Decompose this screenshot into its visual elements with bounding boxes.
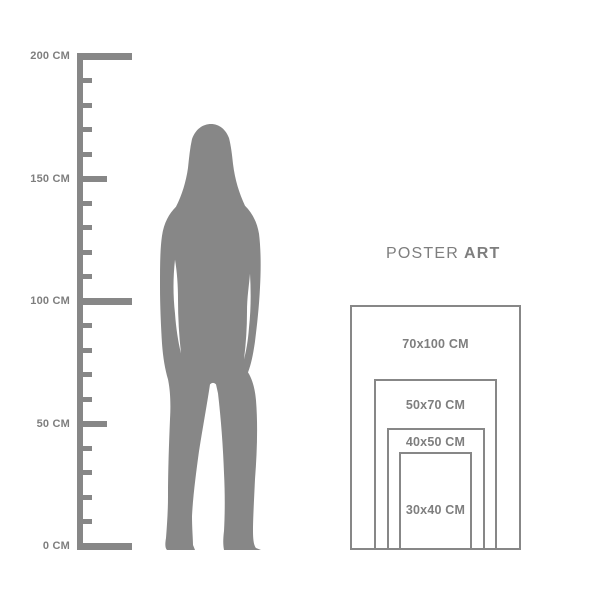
- ruler-tick-160cm: [77, 152, 92, 157]
- size-rect-70x100: [350, 305, 522, 550]
- ruler-tick-80cm: [77, 348, 92, 353]
- ruler-tick-120cm: [77, 250, 92, 255]
- ruler-tick-30cm: [77, 470, 92, 475]
- ruler-tick-90cm: [77, 323, 92, 328]
- ruler-label-50cm: 50 CM: [0, 417, 70, 431]
- poster-size-guide: 200 CM150 CM100 CM50 CM0 CM POSTERART 70…: [0, 0, 600, 600]
- poster-art-title: POSTERART: [386, 244, 500, 264]
- size-label-70x100: 70x100 CM: [366, 337, 506, 352]
- ruler-tick-50cm: [77, 421, 107, 427]
- ruler-tick-190cm: [77, 78, 92, 83]
- size-rect-40x50: [387, 428, 485, 551]
- ruler-tick-60cm: [77, 397, 92, 402]
- size-label-30x40: 30x40 CM: [366, 503, 506, 518]
- ruler-tick-70cm: [77, 372, 92, 377]
- ruler-tick-130cm: [77, 225, 92, 230]
- ruler-tick-10cm: [77, 519, 92, 524]
- ruler-tick-170cm: [77, 127, 92, 132]
- size-rect-50x70: [374, 379, 497, 551]
- ruler-label-0cm: 0 CM: [0, 539, 70, 553]
- woman-silhouette: [155, 122, 267, 551]
- ruler-tick-150cm: [77, 176, 107, 182]
- ruler-tick-20cm: [77, 495, 92, 500]
- ruler-tick-40cm: [77, 446, 92, 451]
- brand-word-art: ART: [464, 245, 500, 262]
- ruler-tick-180cm: [77, 103, 92, 108]
- ruler-label-200cm: 200 CM: [0, 49, 70, 63]
- brand-word-poster: POSTER: [386, 245, 459, 262]
- ruler-label-100cm: 100 CM: [0, 294, 70, 308]
- ruler-tick-110cm: [77, 274, 92, 279]
- ruler-label-150cm: 150 CM: [0, 172, 70, 186]
- ruler-tick-140cm: [77, 201, 92, 206]
- size-label-50x70: 50x70 CM: [366, 398, 506, 413]
- ruler-tick-0cm: [77, 543, 132, 550]
- size-rect-30x40: [399, 452, 473, 550]
- ruler-tick-100cm: [77, 298, 132, 305]
- ruler-tick-200cm: [77, 53, 132, 60]
- woman-silhouette-shape: [160, 124, 261, 550]
- size-label-40x50: 40x50 CM: [366, 435, 506, 450]
